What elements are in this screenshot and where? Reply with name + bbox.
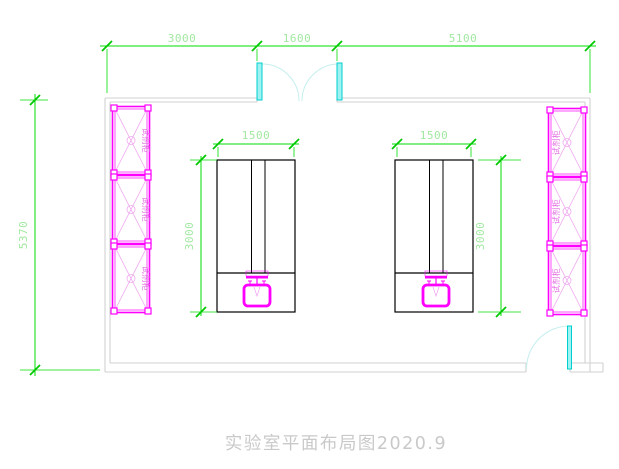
door-leaf-right [337, 63, 342, 100]
dimension-label: 3000 [183, 222, 196, 251]
double-entry-door [257, 63, 342, 101]
cabinet-label: 试剂柜 [141, 128, 151, 154]
cad-drawing-canvas: 试剂柜 试剂柜 试剂柜 试剂柜 试剂柜 试剂柜 3000 160 [0, 0, 619, 469]
cabinet-label: 试剂柜 [141, 266, 151, 292]
dimension-top-chain: 3000 1600 5100 [100, 32, 596, 93]
dimension-label: 5370 [17, 221, 30, 250]
dimension-label: 1500 [242, 129, 271, 142]
dimension-label: 5100 [449, 32, 478, 45]
dimension-label: 1600 [283, 32, 312, 45]
cabinet-label: 试剂柜 [141, 197, 151, 223]
cabinet-column-left: 试剂柜 试剂柜 试剂柜 [111, 105, 151, 314]
single-rear-door [527, 326, 572, 369]
dimension-bench-right-depth: 3000 [474, 155, 521, 317]
dimension-label: 3000 [474, 222, 487, 251]
door-swing-arc-left [262, 64, 299, 101]
dimension-bench-right-width: 1500 [392, 129, 476, 157]
door-leaf [568, 326, 572, 369]
dimension-bench-left-width: 1500 [213, 129, 299, 157]
cabinet-label: 试剂柜 [551, 268, 561, 294]
lab-bench-left [217, 160, 295, 312]
door-swing-arc [527, 326, 570, 369]
dimension-label: 3000 [168, 32, 197, 45]
lab-bench-right [395, 160, 473, 312]
dimension-label: 1500 [420, 129, 449, 142]
door-leaf-left [257, 63, 262, 100]
drawing-title: 实验室平面布局图2020.9 [225, 434, 447, 454]
cabinet-column-right: 试剂柜 试剂柜 试剂柜 [547, 107, 587, 316]
dimension-bench-left-depth: 3000 [183, 155, 217, 317]
dimension-room-height: 5370 [17, 94, 100, 376]
cabinet-label: 试剂柜 [551, 199, 561, 225]
floor-plan: 试剂柜 试剂柜 试剂柜 试剂柜 试剂柜 试剂柜 3000 160 [0, 0, 619, 469]
cabinet-label: 试剂柜 [551, 130, 561, 156]
room-walls [105, 98, 603, 372]
door-swing-arc-right [302, 64, 339, 101]
